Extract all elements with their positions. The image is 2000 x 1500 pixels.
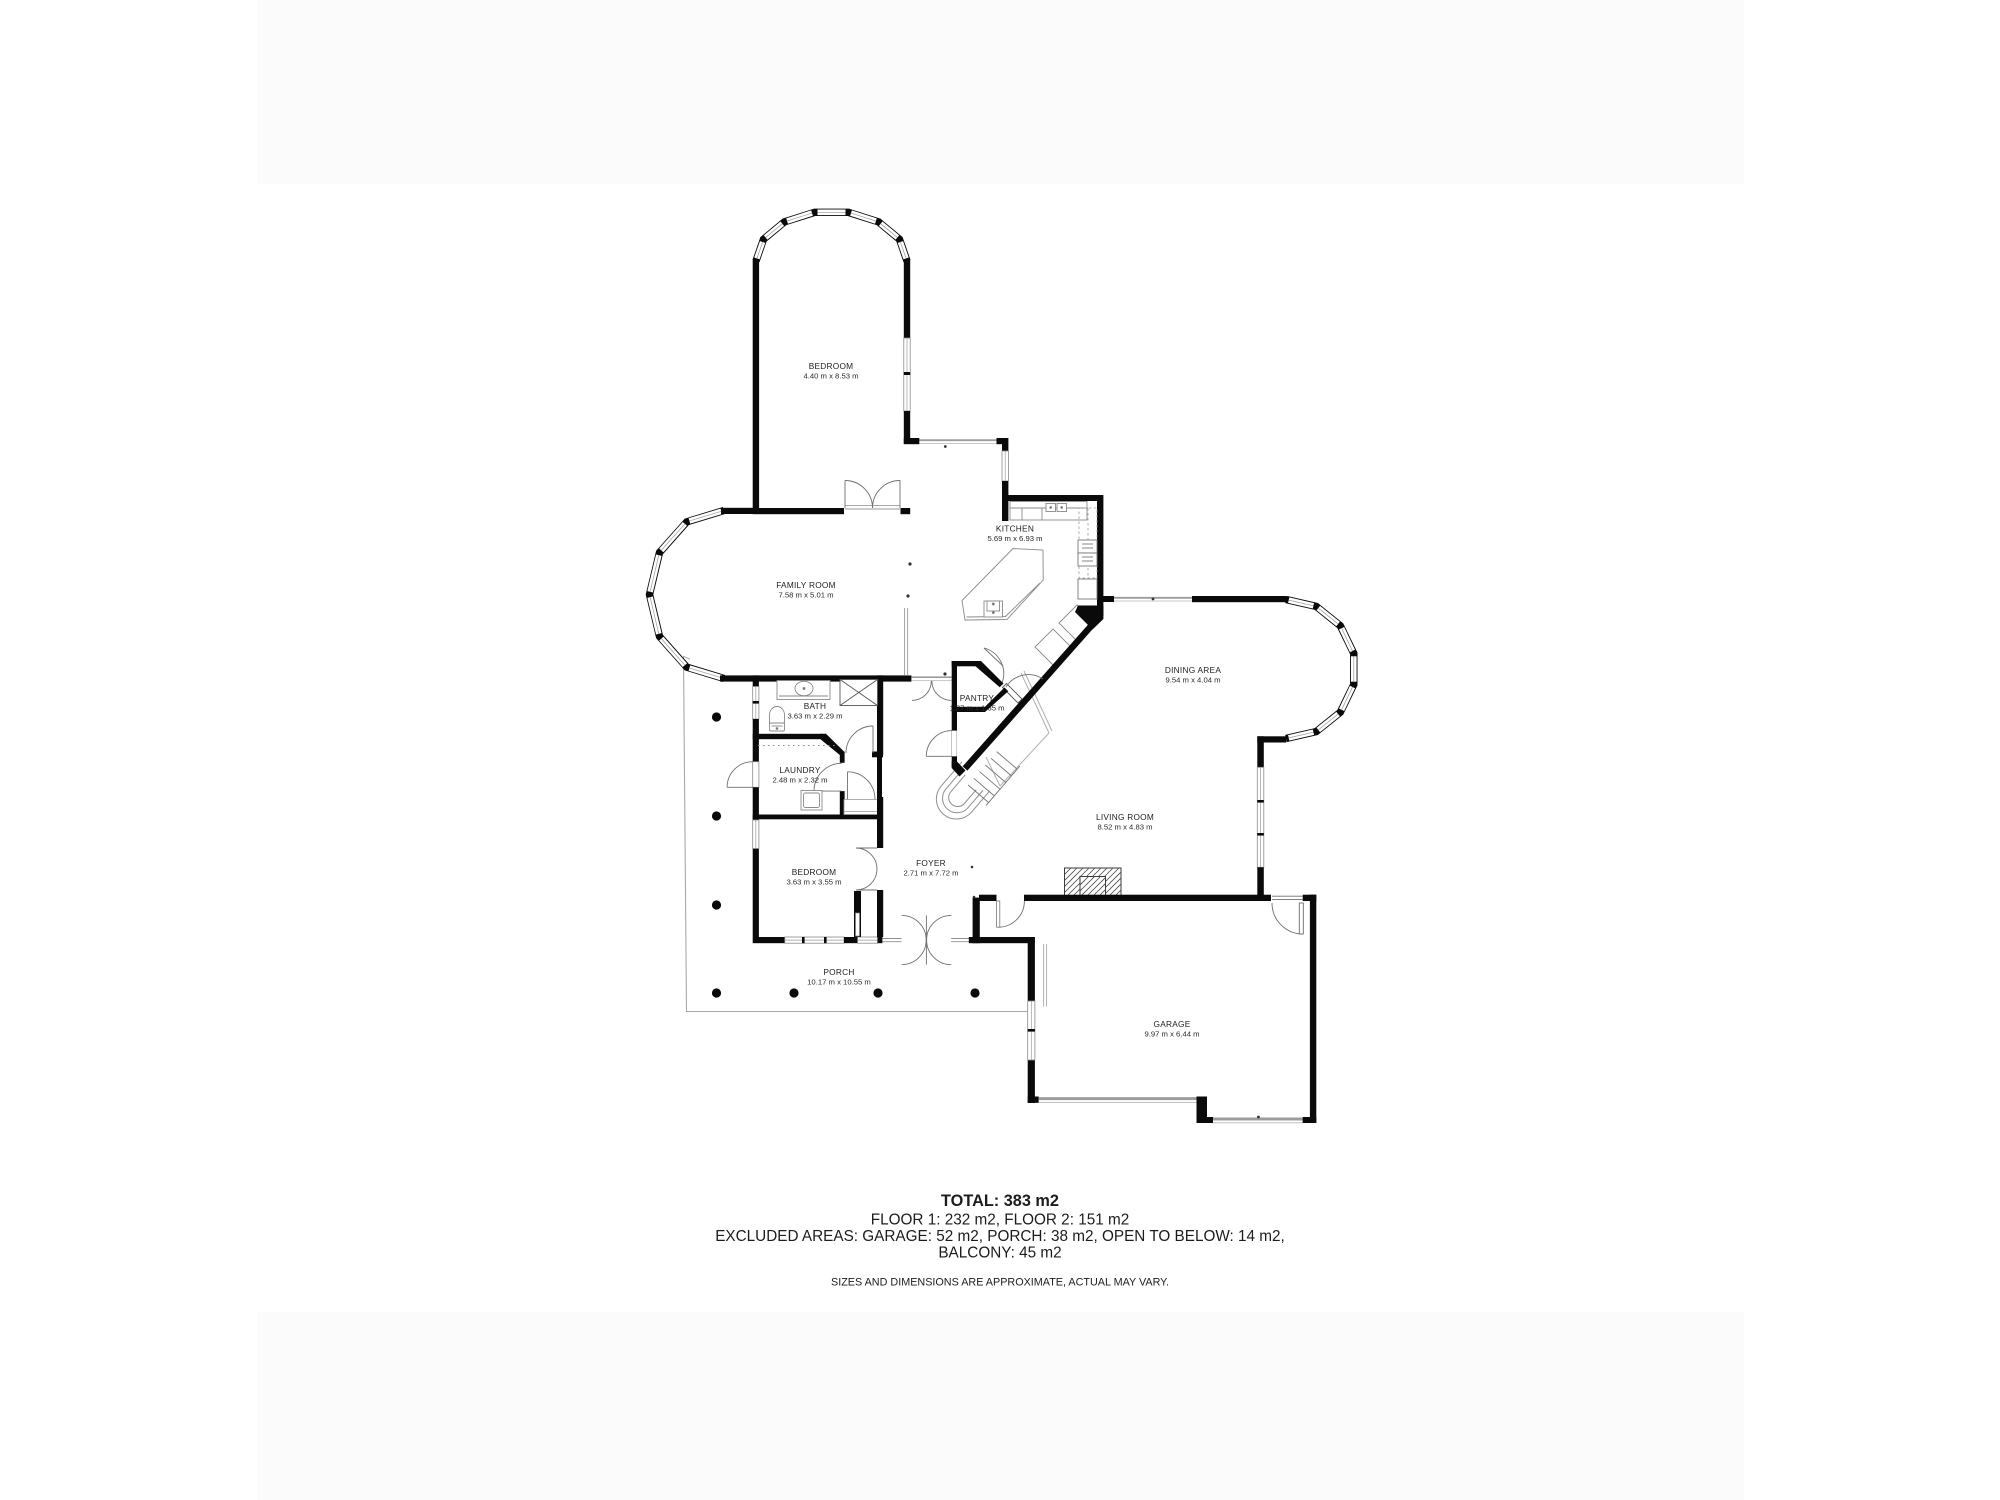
svg-text:FAMILY ROOM: FAMILY ROOM — [776, 580, 836, 590]
svg-text:5.69 m x 6.93 m: 5.69 m x 6.93 m — [987, 534, 1042, 543]
svg-text:BEDROOM: BEDROOM — [809, 361, 854, 371]
svg-text:LAUNDRY: LAUNDRY — [779, 765, 820, 775]
svg-text:EXCLUDED AREAS: GARAGE: 52 m2,: EXCLUDED AREAS: GARAGE: 52 m2, PORCH: 38… — [715, 1228, 1285, 1245]
svg-text:PORCH: PORCH — [823, 967, 854, 977]
svg-text:FLOOR 1: 232 m2, FLOOR 2: 151: FLOOR 1: 232 m2, FLOOR 2: 151 m2 — [871, 1212, 1129, 1229]
svg-text:DINING AREA: DINING AREA — [1165, 665, 1221, 675]
svg-text:9.97 m x 6.44 m: 9.97 m x 6.44 m — [1144, 1030, 1199, 1039]
svg-text:FOYER: FOYER — [916, 858, 946, 868]
svg-text:PANTRY: PANTRY — [960, 693, 995, 703]
svg-text:3.63 m x 3.55 m: 3.63 m x 3.55 m — [786, 878, 841, 887]
svg-text:2.71 m x 7.72 m: 2.71 m x 7.72 m — [903, 869, 958, 878]
svg-text:LIVING ROOM: LIVING ROOM — [1096, 812, 1154, 822]
svg-text:KITCHEN: KITCHEN — [996, 524, 1034, 534]
svg-text:9.54 m x 4.04 m: 9.54 m x 4.04 m — [1165, 676, 1220, 685]
svg-text:2.48 m x 2.32 m: 2.48 m x 2.32 m — [772, 776, 827, 785]
svg-text:1.27 m x 1.35 m: 1.27 m x 1.35 m — [949, 704, 1004, 713]
svg-text:7.58 m x 5.01 m: 7.58 m x 5.01 m — [778, 591, 833, 600]
svg-text:GARAGE: GARAGE — [1153, 1019, 1190, 1029]
svg-text:BALCONY: 45 m2: BALCONY: 45 m2 — [938, 1245, 1061, 1262]
svg-text:TOTAL: 383 m2: TOTAL: 383 m2 — [941, 1192, 1059, 1210]
svg-text:BEDROOM: BEDROOM — [792, 867, 837, 877]
svg-text:3.63 m x 2.29 m: 3.63 m x 2.29 m — [787, 712, 842, 721]
svg-text:10.17 m x 10.55 m: 10.17 m x 10.55 m — [807, 978, 871, 987]
svg-text:BATH: BATH — [804, 701, 827, 711]
svg-text:SIZES AND DIMENSIONS ARE APPRO: SIZES AND DIMENSIONS ARE APPROXIMATE, AC… — [831, 1277, 1169, 1289]
svg-text:4.40 m x 8.53 m: 4.40 m x 8.53 m — [803, 372, 858, 381]
svg-text:8.52 m x 4.83 m: 8.52 m x 4.83 m — [1097, 823, 1152, 832]
